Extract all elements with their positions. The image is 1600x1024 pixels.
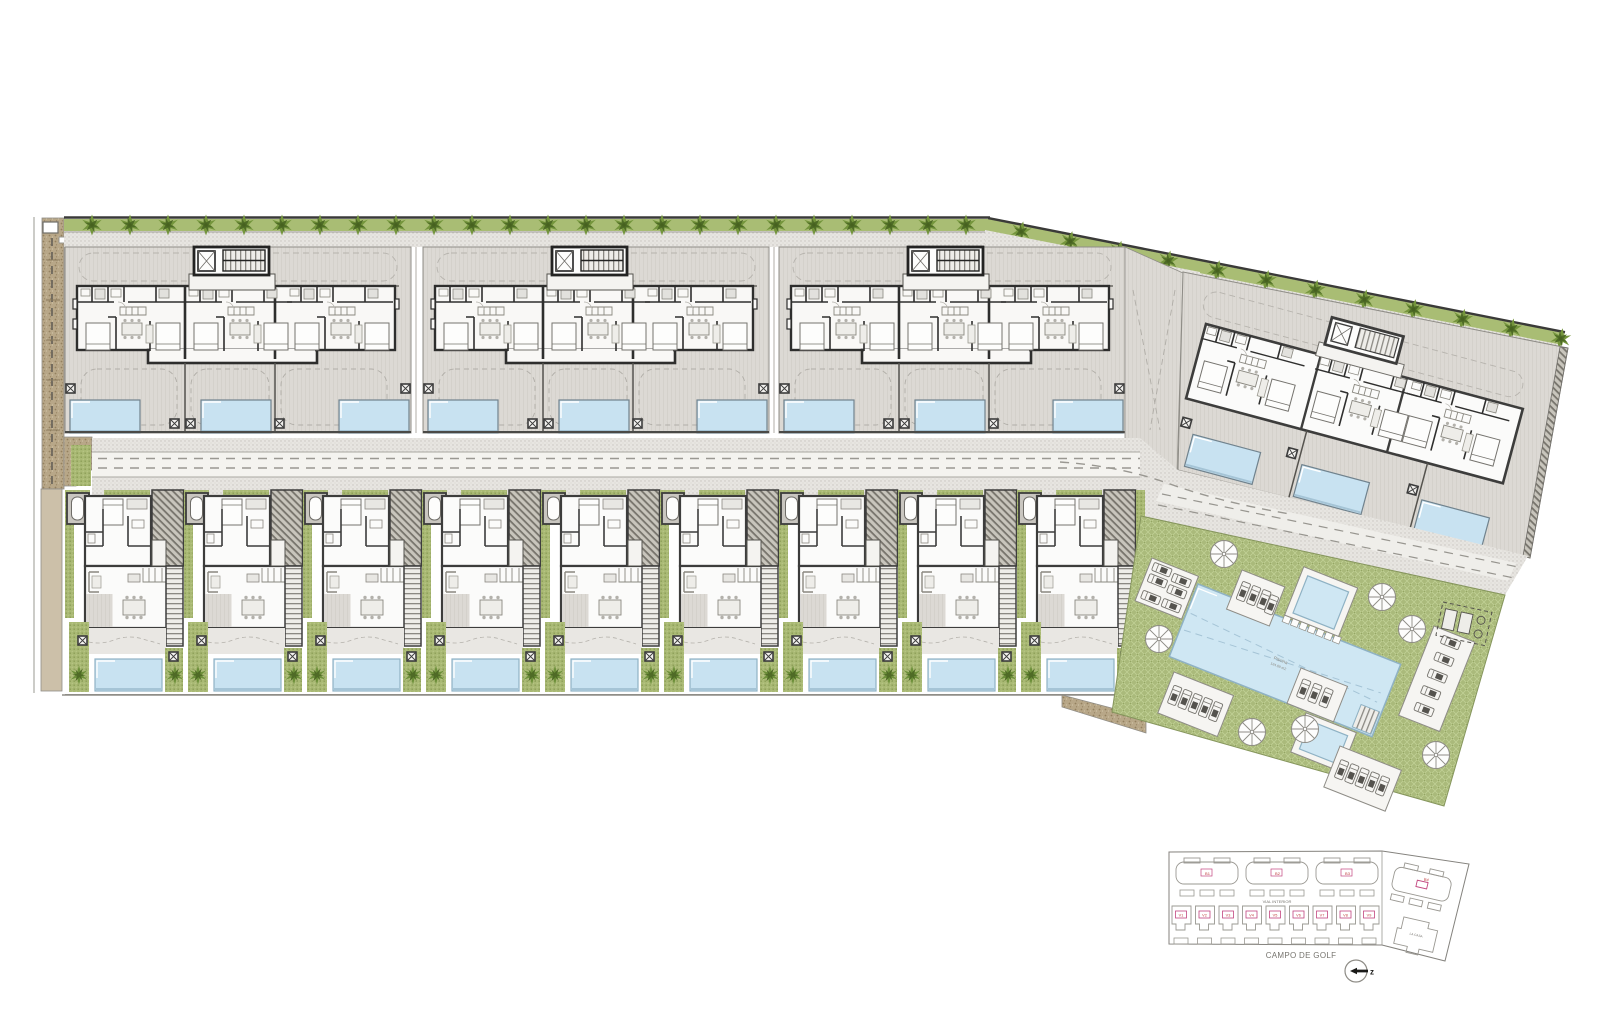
- svg-text:B1: B1: [1205, 871, 1211, 876]
- svg-text:B2: B2: [1275, 871, 1281, 876]
- svg-text:V3: V3: [1226, 914, 1231, 918]
- svg-text:VIAL INTERIOR: VIAL INTERIOR: [1263, 899, 1292, 904]
- svg-text:V7: V7: [1320, 914, 1325, 918]
- svg-text:V4: V4: [1249, 914, 1254, 918]
- svg-text:V2: V2: [1202, 914, 1207, 918]
- svg-text:B3: B3: [1345, 871, 1351, 876]
- svg-text:V1: V1: [1179, 914, 1184, 918]
- svg-text:V6: V6: [1296, 914, 1301, 918]
- svg-text:z: z: [1370, 968, 1374, 977]
- svg-text:V5: V5: [1273, 914, 1278, 918]
- svg-text:CAMPO DE GOLF: CAMPO DE GOLF: [1266, 951, 1337, 960]
- svg-text:V8: V8: [1343, 914, 1348, 918]
- svg-text:V9: V9: [1367, 914, 1372, 918]
